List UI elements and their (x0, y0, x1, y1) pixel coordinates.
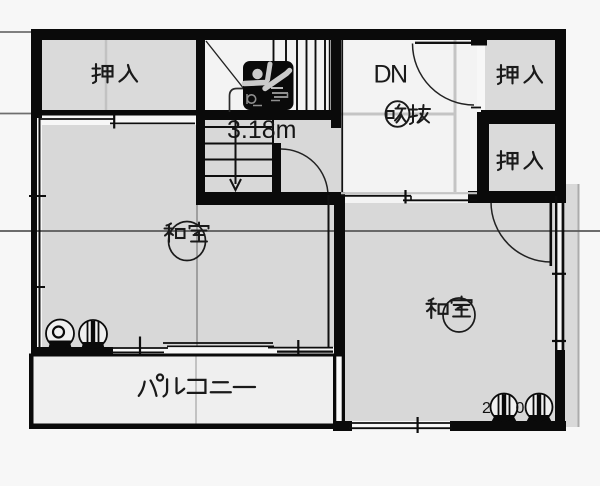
svg-text:0: 0 (516, 400, 525, 417)
svg-text:3.18m: 3.18m (227, 116, 296, 144)
svg-text:DN: DN (374, 61, 408, 89)
svg-text:2: 2 (482, 400, 491, 417)
